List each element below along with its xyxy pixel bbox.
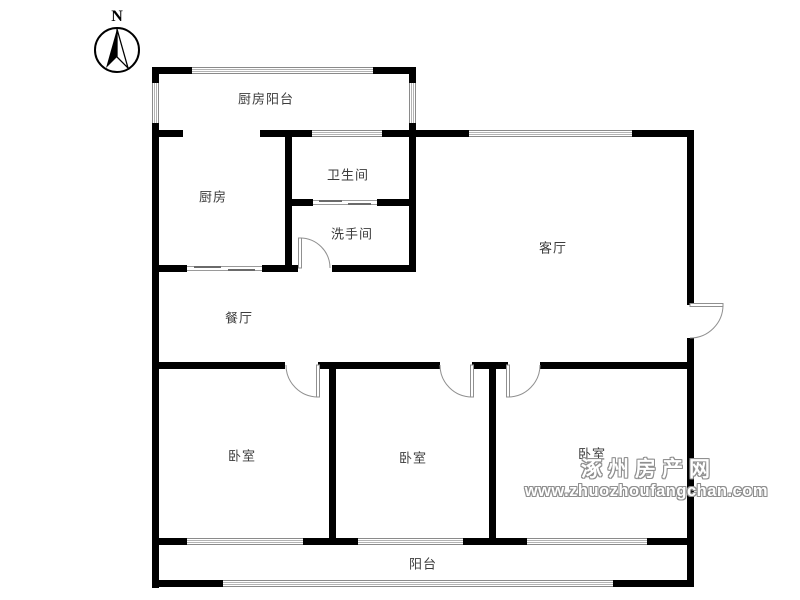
bedroom-left-door-leaf bbox=[317, 365, 320, 397]
bedroom-middle-door-fill bbox=[440, 365, 472, 397]
watermark-site-name: 涿州房产网 bbox=[420, 458, 768, 482]
bedroom-middle-door-leaf bbox=[471, 365, 474, 397]
room-label-bedroom-left: 卧室 bbox=[228, 446, 256, 465]
room-label-dining-room: 餐厅 bbox=[225, 308, 253, 327]
room-label-washroom: 洗手间 bbox=[331, 224, 373, 243]
room-label-bathroom: 卫生间 bbox=[327, 165, 369, 184]
room-label-balcony: 阳台 bbox=[409, 554, 437, 573]
north-arrow-icon bbox=[93, 26, 141, 74]
watermark: 涿州房产网 www.zhuozhoufangchan.com bbox=[420, 458, 768, 501]
doors-layer bbox=[0, 0, 800, 600]
room-label-living-room: 客厅 bbox=[539, 238, 567, 257]
floor-plan: N 厨房阳台 厨房 卫生间 洗手间 客厅 餐厅 卧室 卧室 bbox=[0, 0, 800, 600]
washroom-door-leaf bbox=[299, 238, 302, 268]
watermark-site-url: www.zhuozhoufangchan.com bbox=[420, 482, 768, 501]
bedroom-right-door-fill bbox=[508, 365, 540, 397]
room-label-kitchen: 厨房 bbox=[199, 187, 227, 206]
room-label-kitchen-balcony: 厨房阳台 bbox=[238, 89, 294, 108]
entry-door-fill bbox=[690, 305, 723, 338]
compass-north-label: N bbox=[92, 8, 142, 26]
bedroom-right-door-leaf bbox=[507, 365, 510, 397]
bedroom-left-door-fill bbox=[286, 365, 318, 397]
compass: N bbox=[92, 8, 142, 84]
entry-door-leaf bbox=[690, 304, 723, 307]
